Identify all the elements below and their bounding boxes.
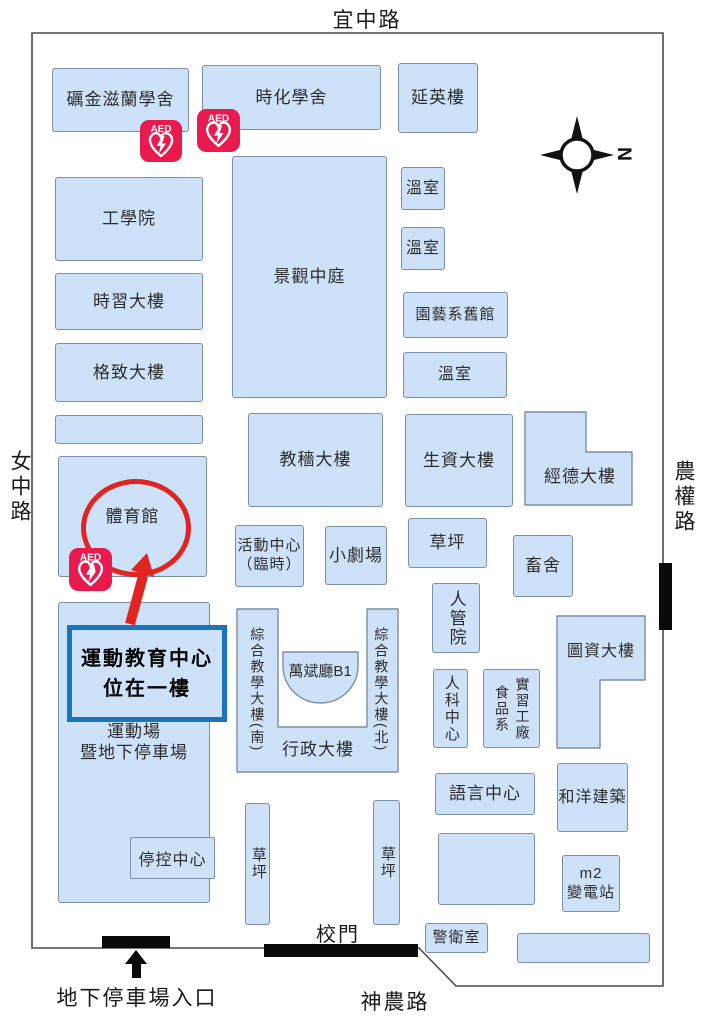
building-lawn-center: 草坪 (408, 518, 487, 568)
building-lawn-left: 草坪 (245, 803, 270, 925)
parking-gate-bar (102, 936, 170, 948)
building-gezhi: 格致大樓 (55, 343, 203, 402)
parking-arrow-stem (132, 963, 141, 978)
aed-icon: AED (139, 119, 183, 163)
building-unlabeled-mid (438, 833, 535, 905)
road-label-top: 宜中路 (297, 4, 437, 34)
parking-arrow-icon (125, 950, 147, 964)
building-tuzi-shape (556, 615, 648, 750)
compass-rose-icon (538, 112, 616, 196)
road-label-bottom: 神農路 (340, 986, 450, 1016)
building-horticulture-old: 園藝系舊館 (403, 292, 508, 338)
building-shengzi: 生資大樓 (405, 414, 513, 507)
building-lawn-right: 草坪 (373, 800, 400, 925)
road-label-right: 農權路 (668, 460, 698, 535)
building-substation: m2 變電站 (562, 855, 620, 912)
building-shixi: 時習大樓 (55, 273, 203, 330)
building-renguan: 人管院 (432, 583, 480, 653)
building-admin-label: 行政大樓 (236, 737, 400, 763)
annotation-box: 運動教育中心 位在一樓 (67, 625, 227, 722)
building-language-center: 語言中心 (435, 773, 535, 815)
aed-icon: AED (68, 547, 113, 592)
building-tuzi-label: 圖資大樓 (558, 642, 644, 662)
north-label: N (612, 147, 634, 161)
campus-map: 宜中路 女中路 農權路 神農路 礪金滋蘭學舍 時化學舍 延英樓 工學院 時習大樓… (0, 0, 702, 1024)
building-small-theater: 小劇場 (325, 526, 387, 585)
side-gate-bar (659, 563, 672, 630)
building-unlabeled-strip (55, 415, 203, 444)
building-food-practice: 食品系 實習工廠 (483, 669, 540, 748)
building-guard: 警衛室 (425, 923, 488, 953)
building-wanbin-hall-label: 萬斌廳B1 (281, 652, 359, 692)
building-practice-factory-label: 實習工廠 (513, 677, 531, 741)
building-landscape-court: 景觀中庭 (232, 156, 387, 398)
annotation-line2: 位在一樓 (103, 674, 191, 704)
building-jingde-shape (524, 411, 634, 507)
parking-entrance-label: 地下停車場入口 (37, 982, 237, 1012)
building-yanying: 延英樓 (398, 63, 478, 133)
building-livestock: 畜舍 (513, 535, 573, 597)
road-label-left: 女中路 (4, 450, 34, 525)
building-heyang: 和洋建築 (557, 763, 628, 832)
building-greenhouse-1: 溫室 (401, 167, 445, 210)
building-greenhouse-3: 溫室 (403, 352, 507, 398)
main-gate-label: 校門 (308, 918, 368, 947)
building-renke: 人科中心 (433, 669, 468, 748)
annotation-line1: 運動教育中心 (81, 644, 213, 674)
building-greenhouse-2: 溫室 (401, 227, 445, 270)
building-activity-center: 活動中心 （臨時） (235, 525, 304, 587)
main-gate-bar (264, 944, 418, 957)
annotation-arrow (112, 550, 164, 628)
building-jiaose: 教穡大樓 (248, 413, 383, 507)
building-food-dept-label: 食品系 (493, 685, 511, 733)
aed-icon: AED (196, 108, 241, 153)
building-engineering: 工學院 (55, 177, 203, 261)
building-parking-control: 停控中心 (130, 837, 215, 879)
building-unlabeled-bottom (517, 933, 650, 963)
building-jingde-label: 經德大樓 (534, 466, 626, 488)
